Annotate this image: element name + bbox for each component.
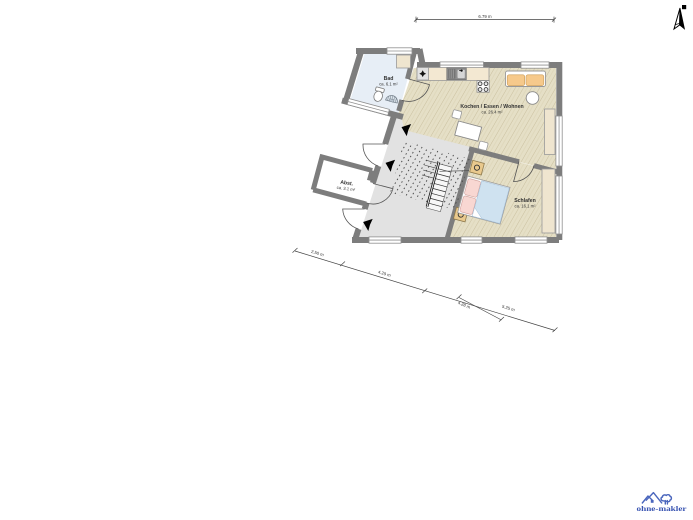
svg-text:6.79 m: 6.79 m	[478, 14, 492, 19]
svg-text:ca. 6.1 m²: ca. 6.1 m²	[379, 82, 398, 87]
svg-text:ohne-makler: ohne-makler	[637, 504, 688, 513]
svg-text:ca. 26.4 m²: ca. 26.4 m²	[482, 110, 504, 115]
svg-text:ca. 16.1 m²: ca. 16.1 m²	[515, 204, 537, 209]
